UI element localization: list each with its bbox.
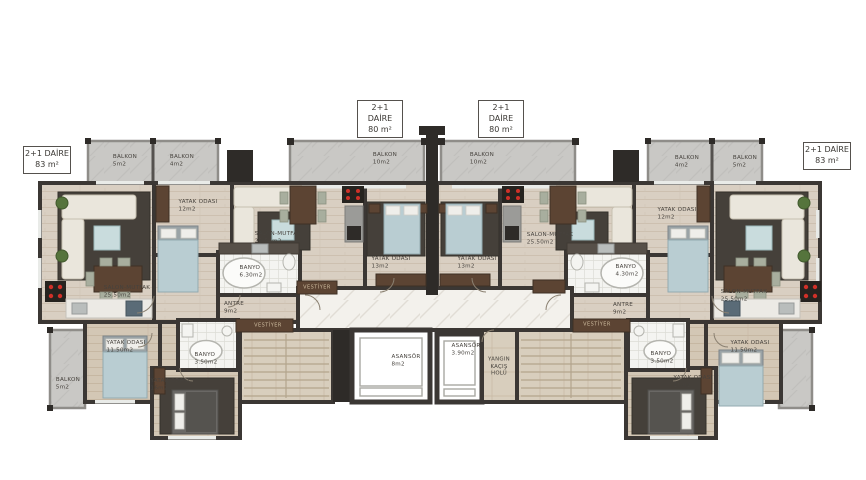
vestiyer-cabinet	[533, 280, 565, 293]
bathtub-icon	[644, 341, 676, 362]
dining-table	[290, 186, 316, 224]
shaft-left	[227, 150, 253, 182]
dining-table	[550, 186, 576, 224]
cooktop-icon	[45, 281, 66, 302]
bathtub-icon	[601, 258, 643, 288]
vestiyer-cabinet	[297, 281, 337, 294]
bathtub-icon	[223, 258, 265, 288]
wardrobe	[154, 368, 165, 394]
sink-icon	[182, 324, 193, 337]
elevator-1	[352, 330, 430, 402]
vestiyer-cabinet	[573, 319, 630, 332]
sink-icon	[585, 283, 599, 292]
plant-icon	[798, 250, 810, 262]
floor-plan: 2+1 DAİRE83 m²2+1 DAİRE80 m²2+1 DAİRE80 …	[0, 0, 866, 480]
floor-plan-graphic	[0, 0, 866, 480]
toilet-icon	[571, 254, 583, 270]
dining-table	[94, 266, 142, 292]
vestiyer-cabinet	[236, 319, 293, 332]
dresser	[376, 274, 426, 286]
wardrobe	[701, 368, 712, 394]
bathtub-icon	[190, 341, 222, 362]
cooktop-icon	[342, 186, 364, 203]
plant-icon	[798, 197, 810, 209]
wardrobe	[697, 186, 710, 222]
wardrobe	[156, 186, 169, 222]
dining-table	[724, 266, 772, 292]
toilet-icon	[222, 326, 232, 336]
plant-icon	[56, 250, 68, 262]
toilet-icon	[283, 254, 295, 270]
cooktop-icon	[502, 186, 524, 203]
plant-icon	[56, 197, 68, 209]
cooktop-icon	[800, 281, 821, 302]
shaft-right	[613, 150, 639, 182]
fire-escape-hall	[482, 330, 517, 402]
toilet-icon	[634, 326, 644, 336]
sink-icon	[673, 324, 684, 337]
dresser	[440, 274, 490, 286]
sink-icon	[267, 283, 281, 292]
